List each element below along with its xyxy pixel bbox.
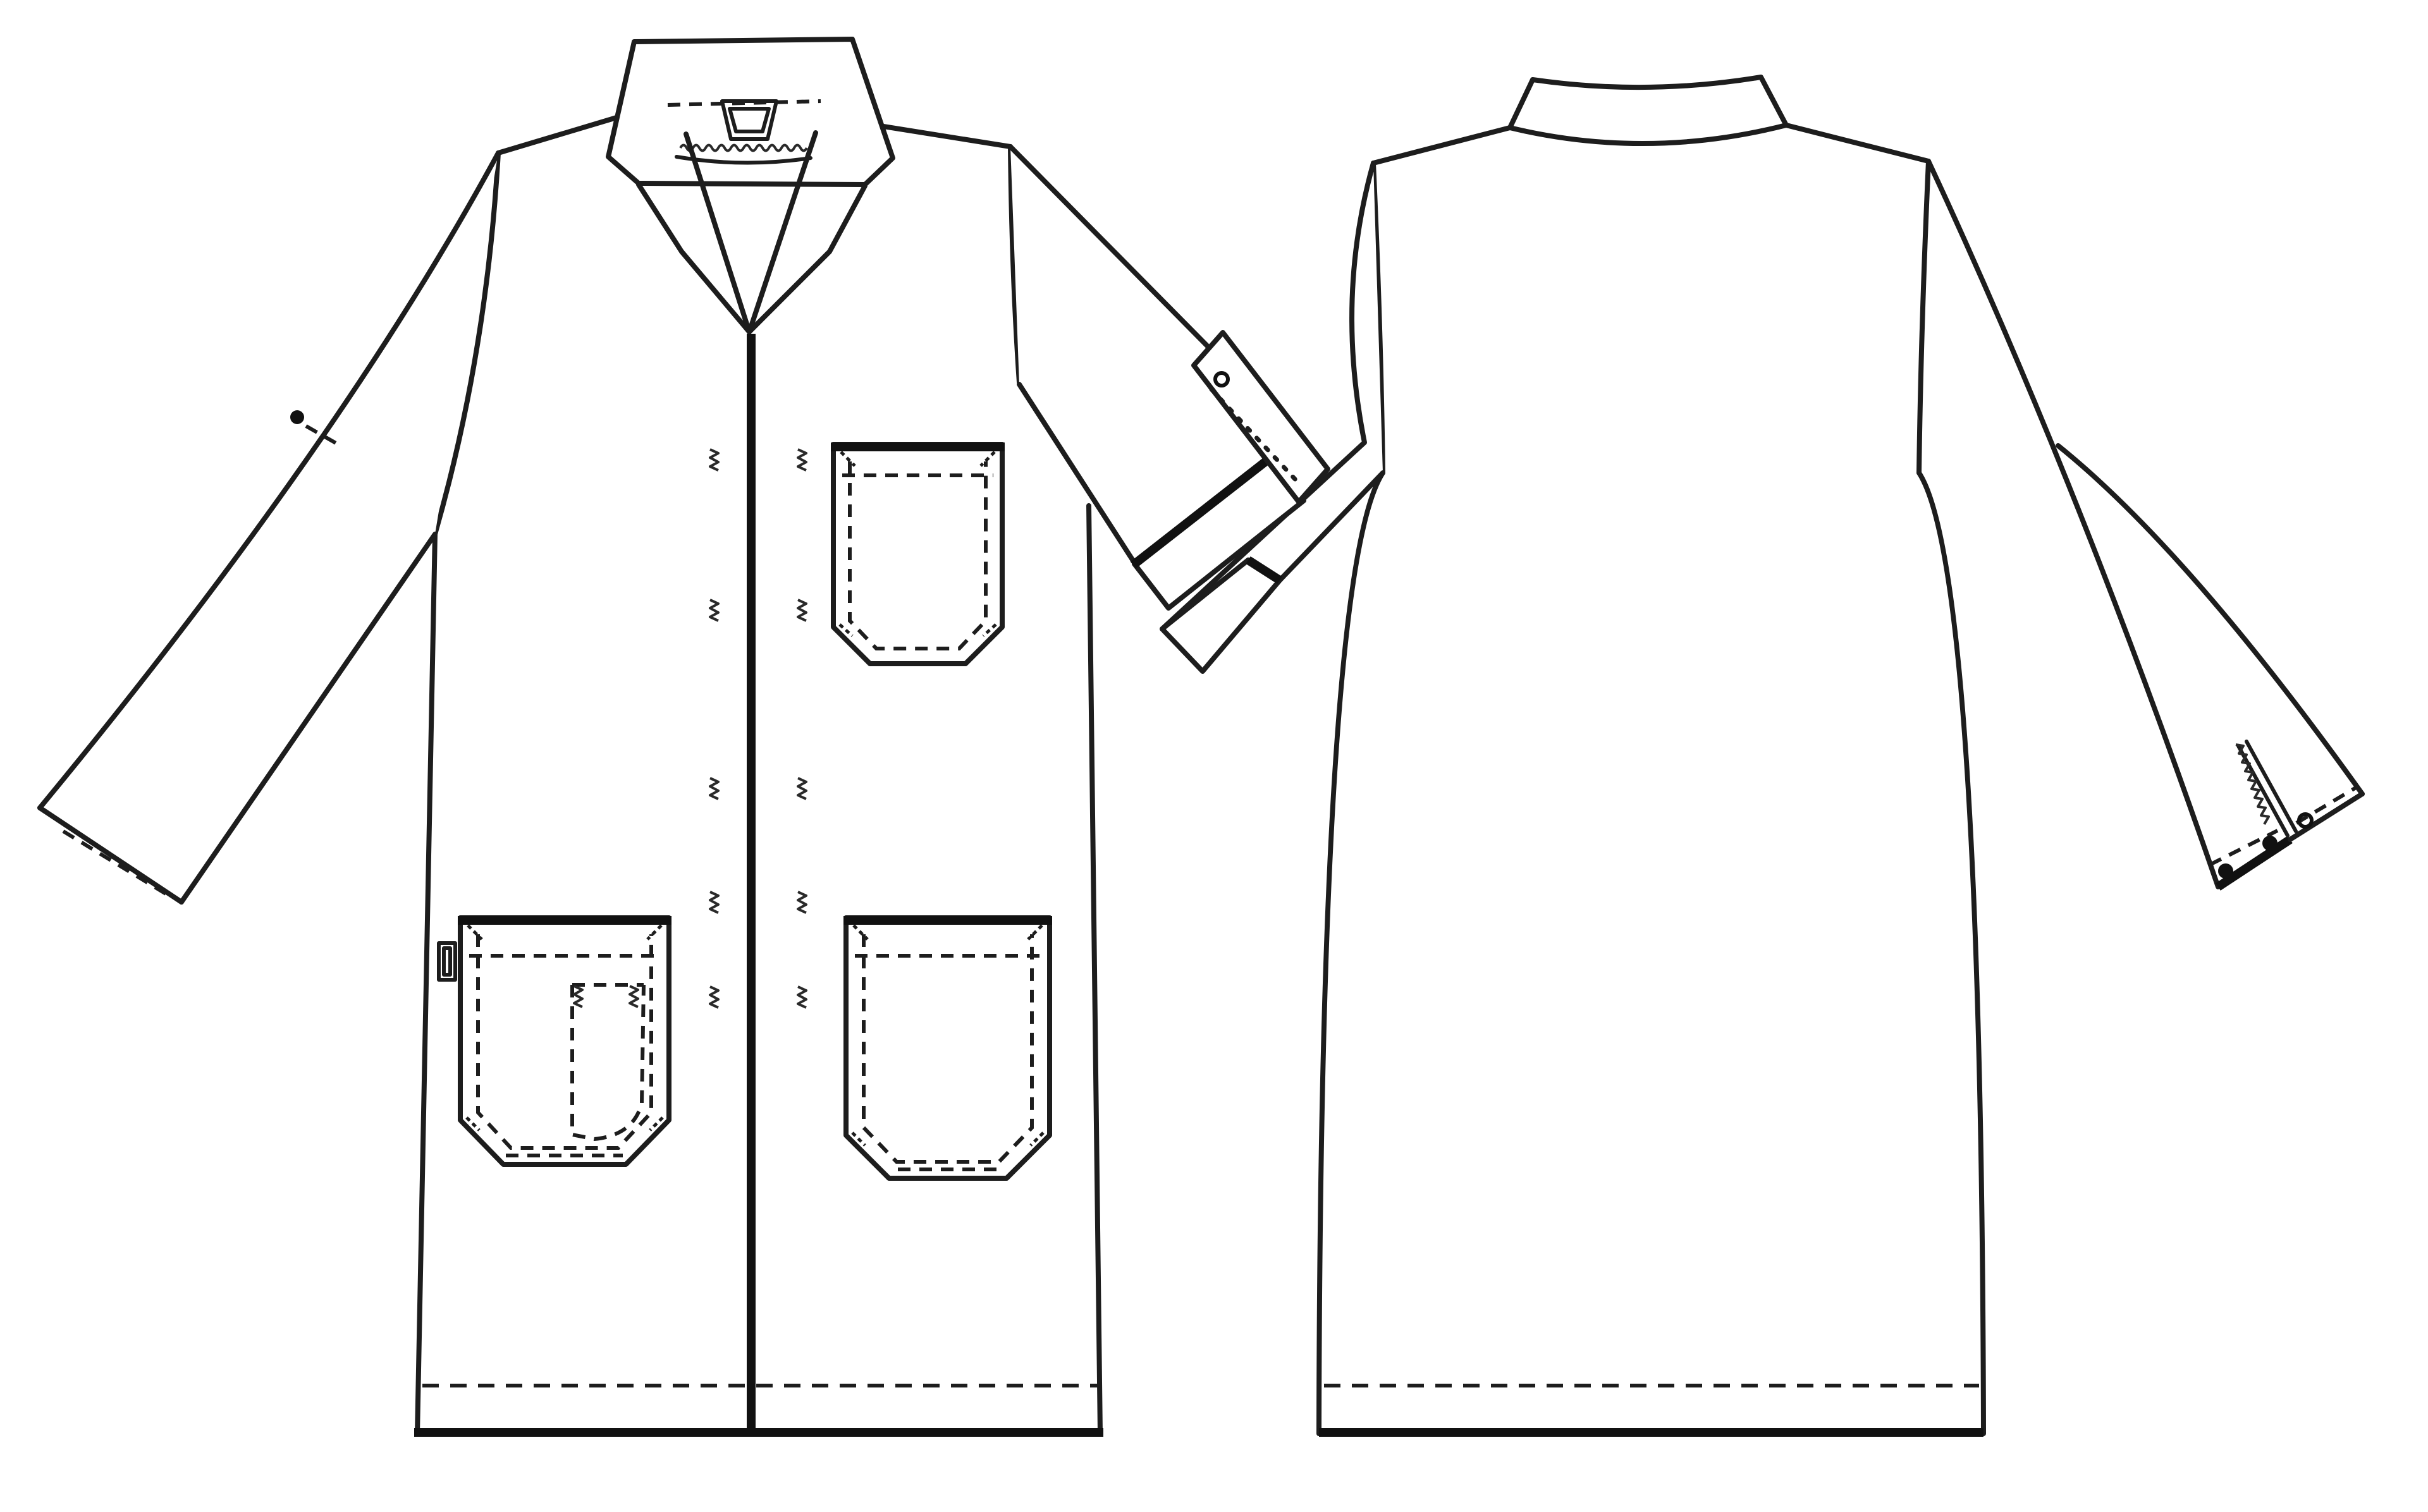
lab-coat-flat-sketch	[0, 0, 2428, 1512]
chest-pocket	[831, 444, 1005, 664]
front-view	[40, 39, 1328, 1434]
lower-right-pocket	[843, 918, 1052, 1178]
front-body-fill	[417, 147, 1100, 1434]
front-shoulder-left	[498, 116, 623, 153]
back-cuff-button-2	[2262, 836, 2278, 851]
collar-zigzag-stitch	[680, 145, 807, 151]
flat-sketch-page	[0, 0, 2428, 1512]
back-collar	[1510, 77, 1786, 143]
back-cuff-button-1	[2218, 863, 2233, 879]
back-view	[1162, 77, 2362, 1434]
roll-up-button	[290, 410, 304, 424]
back-body-fill	[1319, 125, 1983, 1434]
back-right-sleeve	[1928, 161, 2362, 887]
lower-left-pocket	[439, 918, 671, 1164]
